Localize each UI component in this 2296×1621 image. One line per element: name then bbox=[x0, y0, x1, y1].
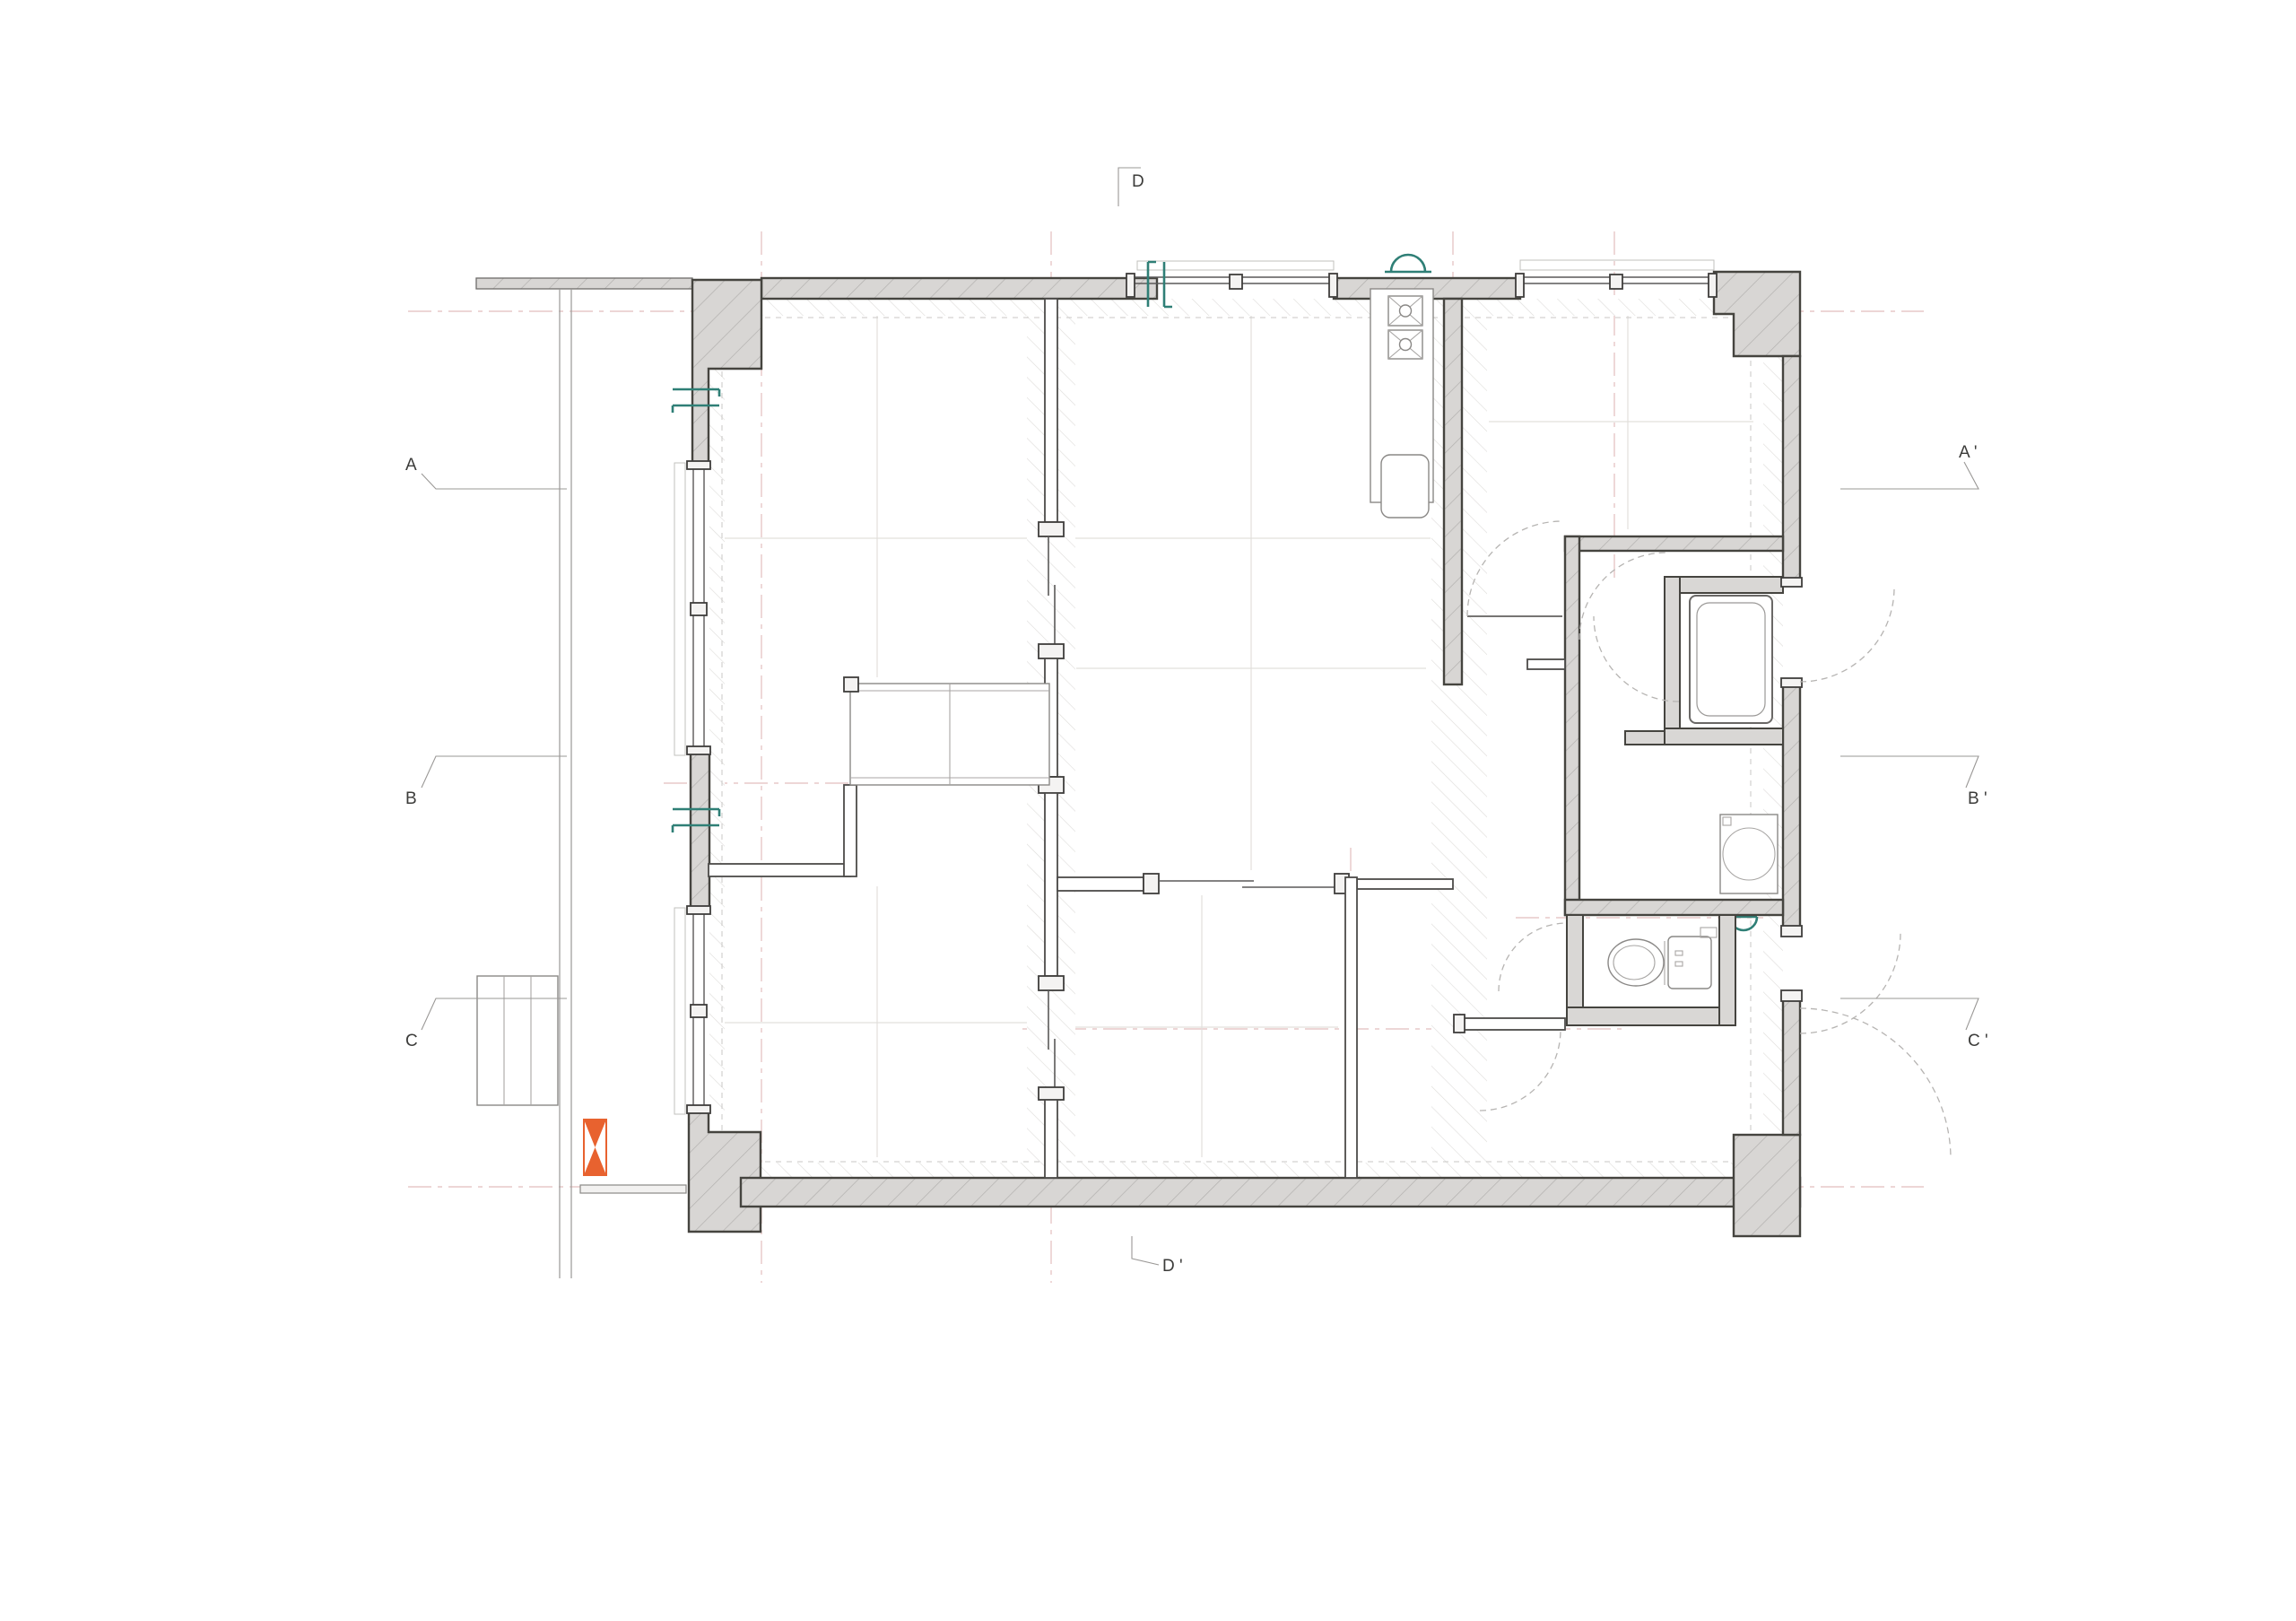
right-wall-segment bbox=[1783, 356, 1800, 583]
section-label-b-left: B bbox=[405, 789, 417, 808]
bottom-wall bbox=[741, 1178, 1800, 1207]
balcony bbox=[476, 278, 692, 1278]
left-window-upper bbox=[674, 461, 710, 755]
exterior-door-arc-right bbox=[1800, 588, 1894, 682]
section-marker-d-bottom: D ' bbox=[1132, 1236, 1183, 1276]
interior-walls bbox=[709, 299, 1802, 1178]
section-label-d-top: D bbox=[1132, 172, 1144, 191]
south-partition bbox=[1057, 874, 1453, 893]
section-marker-b-right: B ' bbox=[1840, 756, 1987, 808]
section-marker-a-right: A ' bbox=[1840, 443, 1979, 489]
right-wall-segment bbox=[1783, 996, 1800, 1135]
left-window-lower bbox=[674, 906, 710, 1114]
top-window-left bbox=[1126, 261, 1337, 297]
entry-hall-door-arc bbox=[1480, 1030, 1561, 1111]
section-label-a-left: A bbox=[405, 456, 417, 475]
entry-threshold bbox=[580, 1185, 686, 1193]
section-marker-d-top: D bbox=[1118, 168, 1144, 206]
structural-grid-lines bbox=[408, 231, 1924, 1283]
corner-column-top-left bbox=[692, 280, 761, 466]
top-wall-segment bbox=[761, 278, 1157, 299]
section-marker-a-left: A bbox=[405, 456, 567, 489]
entry-marker-icon bbox=[584, 1120, 606, 1175]
kitchen-wall bbox=[1444, 299, 1462, 684]
corner-column-top-right bbox=[1714, 272, 1800, 356]
right-wall-segment bbox=[1783, 682, 1800, 933]
range-hood-icon bbox=[1385, 255, 1431, 272]
section-label-d-bottom: D ' bbox=[1162, 1257, 1183, 1276]
balcony-steps bbox=[477, 976, 558, 1105]
hall-stub-wall bbox=[1527, 659, 1565, 669]
left-wall-segment bbox=[691, 752, 709, 911]
toilet-door-arc bbox=[1499, 923, 1567, 991]
washing-machine-icon bbox=[1720, 815, 1778, 893]
top-window-right bbox=[1516, 260, 1717, 297]
entry-hall-wall bbox=[1462, 1018, 1565, 1030]
section-marker-c-right: C ' bbox=[1840, 998, 1988, 1050]
windows bbox=[674, 260, 1717, 1114]
kitchen-sink-icon bbox=[1381, 455, 1429, 518]
corner-column-bottom-right bbox=[1734, 1135, 1800, 1236]
section-label-a-right: A ' bbox=[1959, 443, 1978, 462]
bathtub-icon bbox=[1690, 596, 1772, 723]
teal-accents bbox=[673, 255, 1757, 930]
floor-plan-drawing: D D ' A A ' B B ' C C ' bbox=[0, 0, 2296, 1621]
corner-column-bottom-left bbox=[689, 1111, 761, 1232]
balcony-slab bbox=[476, 278, 692, 289]
toilet-icon bbox=[1608, 928, 1717, 989]
entrance-door-arc-upper bbox=[1800, 933, 1900, 1033]
section-marker-b-left: B bbox=[405, 756, 567, 808]
bedroom-divider-wall bbox=[709, 785, 857, 876]
washroom-door-arc bbox=[1579, 553, 1666, 640]
section-label-c-left: C bbox=[405, 1032, 418, 1050]
closet bbox=[844, 677, 1049, 785]
entry-hall-post bbox=[1454, 1015, 1465, 1033]
floor-plan-page: D D ' A A ' B B ' C C ' bbox=[0, 0, 2296, 1621]
tatami-room-right-wall bbox=[1345, 877, 1357, 1178]
section-label-c-right: C ' bbox=[1968, 1032, 1988, 1050]
section-label-b-right: B ' bbox=[1968, 789, 1987, 808]
